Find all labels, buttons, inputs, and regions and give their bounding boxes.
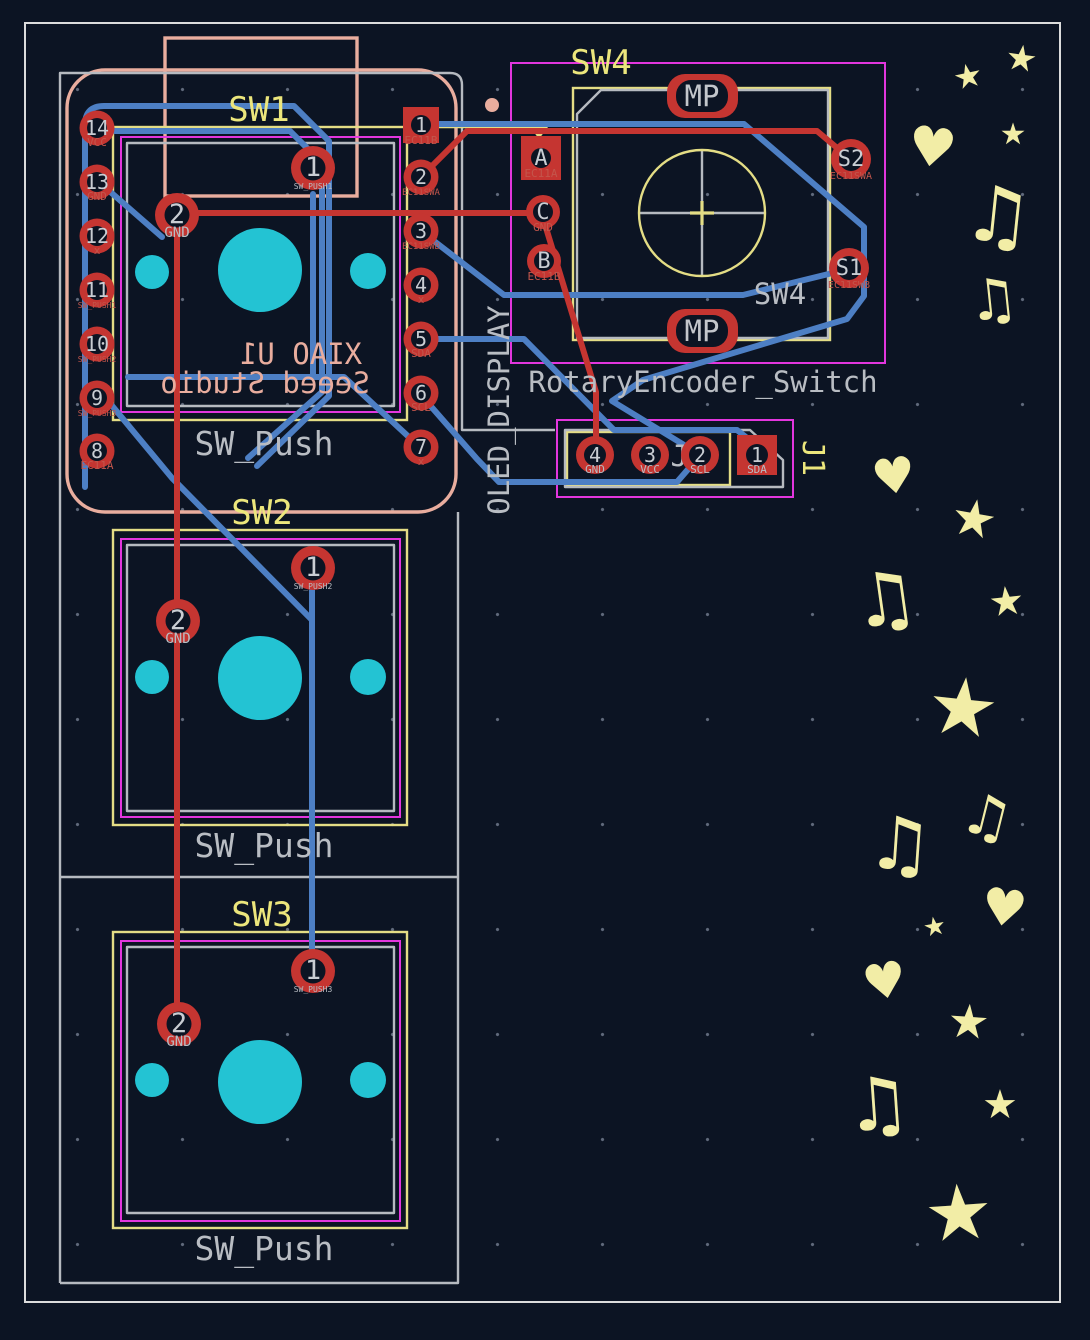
- silkscreen-star-icon[interactable]: ★: [946, 976, 991, 1056]
- svg-text:GND: GND: [533, 221, 553, 234]
- sw2-mount-hole-left: [135, 660, 169, 694]
- svg-text:GND: GND: [87, 190, 107, 203]
- xiao-pad-1[interactable]: 1EC11B: [403, 107, 439, 147]
- pcb-canvas[interactable]: J1 14VCC 13GND 12x 11SW_PUSH1 10SW_PUSH2…: [0, 0, 1090, 1336]
- sw2-pad-1[interactable]: 1SW_PUSH2: [291, 546, 335, 591]
- silkscreen-star-icon[interactable]: ★: [924, 630, 1005, 766]
- sw4-pad-b[interactable]: BEC11B: [527, 244, 561, 283]
- silkscreen-music-note-icon[interactable]: ♫: [855, 552, 914, 648]
- svg-text:9: 9: [91, 386, 103, 410]
- sw1-mount-hole-left: [135, 255, 169, 289]
- rotary-encoder-value-label[interactable]: RotaryEncoder_Switch: [528, 365, 877, 400]
- svg-text:GND: GND: [166, 1034, 191, 1050]
- svg-text:MP: MP: [685, 79, 720, 113]
- svg-text:3: 3: [415, 219, 427, 243]
- xiao-pad-7[interactable]: 7x: [404, 430, 439, 469]
- sw4-ref-label[interactable]: SW4: [570, 43, 631, 83]
- sw3-pad-1[interactable]: 1SW_PUSH3: [291, 949, 335, 994]
- sw2-ref-label[interactable]: SW2: [231, 493, 292, 533]
- j1-ref-label[interactable]: J1: [795, 440, 830, 476]
- silkscreen-star-icon[interactable]: ★: [1000, 106, 1025, 155]
- svg-text:EC11SWA: EC11SWA: [830, 171, 872, 182]
- svg-text:EC11A: EC11A: [524, 167, 557, 180]
- j1-pad-4[interactable]: 4GND: [576, 436, 614, 476]
- svg-text:11: 11: [85, 278, 109, 302]
- sw1-mount-hole-right: [350, 253, 386, 289]
- silkscreen-music-note-icon[interactable]: ♫: [961, 779, 1013, 856]
- svg-text:SW_PUSH1: SW_PUSH1: [78, 301, 117, 310]
- sw2-value-label[interactable]: SW_Push: [194, 826, 333, 866]
- svg-text:1: 1: [305, 552, 321, 583]
- sw1-center-hole: [218, 228, 302, 312]
- sw4-mp-pad-top[interactable]: MP: [667, 74, 738, 118]
- sw3-mount-hole-right: [350, 1062, 386, 1098]
- sw4-value-label[interactable]: SW4: [754, 277, 806, 311]
- oled-display-label[interactable]: OLED_DISPLAY: [482, 305, 517, 515]
- j1-pad-1[interactable]: 1SDA: [737, 435, 777, 476]
- svg-text:x: x: [418, 293, 425, 306]
- silkscreen-music-note-icon[interactable]: ♫: [968, 166, 1027, 266]
- silkscreen-heart-icon[interactable]: ♥: [861, 944, 909, 1019]
- silkscreen-star-icon[interactable]: ★: [946, 467, 1003, 557]
- svg-text:EC11SWB: EC11SWB: [402, 242, 440, 252]
- sw1-value-label[interactable]: SW_Push: [194, 424, 333, 464]
- sw3-pad-2[interactable]: 2GND: [157, 1002, 201, 1050]
- svg-text:x: x: [94, 244, 101, 257]
- svg-text:SW_PUSH3: SW_PUSH3: [78, 409, 117, 418]
- sw1-pad-1[interactable]: 1SW_PUSH1: [291, 146, 335, 191]
- svg-text:EC11B: EC11B: [404, 134, 437, 147]
- svg-text:2: 2: [415, 165, 427, 189]
- silkscreen-music-note-icon[interactable]: ♫: [851, 1058, 904, 1151]
- xiao-pad-8[interactable]: 8EC11A: [80, 434, 115, 473]
- sw2-center-hole: [218, 636, 302, 720]
- silkscreen-heart-icon[interactable]: ♥: [871, 440, 917, 514]
- svg-text:VCC: VCC: [640, 463, 660, 476]
- silkscreen-star-icon[interactable]: ★: [948, 43, 986, 102]
- svg-text:GND: GND: [164, 225, 189, 241]
- svg-text:MP: MP: [685, 314, 720, 348]
- svg-text:10: 10: [85, 332, 109, 356]
- svg-text:EC11B: EC11B: [527, 270, 560, 283]
- sw3-ref-label[interactable]: SW3: [231, 895, 292, 935]
- svg-text:EC11A: EC11A: [80, 459, 113, 472]
- sw3-value-label[interactable]: SW_Push: [194, 1229, 333, 1269]
- svg-text:GND: GND: [585, 463, 605, 476]
- svg-text:SW_PUSH2: SW_PUSH2: [294, 582, 333, 591]
- sw1-ref-label[interactable]: SW1: [228, 90, 289, 130]
- svg-text:SW_PUSH1: SW_PUSH1: [294, 182, 333, 191]
- sw4-pad-a[interactable]: AEC11A: [521, 136, 561, 180]
- svg-text:EC11SWB: EC11SWB: [828, 280, 870, 291]
- xiao-brand-mirrored-label[interactable]: Seeed Studio: [160, 366, 370, 400]
- svg-text:SW_PUSH3: SW_PUSH3: [294, 985, 333, 994]
- svg-text:S2: S2: [838, 147, 865, 172]
- svg-text:VCC: VCC: [87, 136, 107, 149]
- svg-text:x: x: [418, 455, 425, 468]
- svg-text:SCL: SCL: [411, 401, 431, 414]
- silkscreen-heart-icon[interactable]: ♥: [980, 869, 1027, 946]
- svg-text:SDA: SDA: [411, 347, 431, 360]
- svg-text:1: 1: [305, 955, 321, 986]
- module-group-outline-left: [60, 73, 555, 1283]
- xiao-pad-5[interactable]: 5SDA: [404, 322, 439, 361]
- sw3-mount-hole-left: [135, 1063, 169, 1097]
- j1-pad-3[interactable]: 3VCC: [631, 436, 669, 476]
- svg-text:1: 1: [305, 152, 321, 183]
- silkscreen-star-icon[interactable]: ★: [1003, 23, 1041, 85]
- silkscreen-heart-icon[interactable]: ♥: [907, 107, 957, 189]
- svg-text:SW_PUSH2: SW_PUSH2: [78, 355, 117, 364]
- silkscreen-music-note-icon[interactable]: ♫: [971, 263, 1014, 336]
- trace-front-copper-enc[interactable]: [421, 131, 849, 177]
- svg-text:EC11SWA: EC11SWA: [402, 188, 441, 198]
- silkscreen-star-icon[interactable]: ★: [920, 902, 948, 946]
- silkscreen-music-note-icon[interactable]: ♫: [873, 798, 926, 891]
- svg-text:S1: S1: [836, 256, 863, 281]
- silkscreen-star-icon[interactable]: ★: [983, 1068, 1017, 1133]
- silkscreen-star-icon[interactable]: ★: [921, 1139, 995, 1268]
- sw2-pad-2[interactable]: 2GND: [156, 599, 200, 647]
- sw3-center-hole: [218, 1040, 302, 1124]
- sw4-pad-c[interactable]: CGND: [526, 195, 560, 234]
- xiao-pad-4[interactable]: 4x: [404, 268, 439, 307]
- silkscreen-star-icon[interactable]: ★: [986, 563, 1026, 631]
- sw4-mp-pad-bottom[interactable]: MP: [667, 309, 738, 353]
- back-silkscreen-dot: [485, 98, 499, 112]
- sw2-mount-hole-right: [350, 659, 386, 695]
- svg-text:GND: GND: [165, 631, 190, 647]
- svg-text:SDA: SDA: [747, 463, 767, 476]
- svg-text:SCL: SCL: [690, 463, 710, 476]
